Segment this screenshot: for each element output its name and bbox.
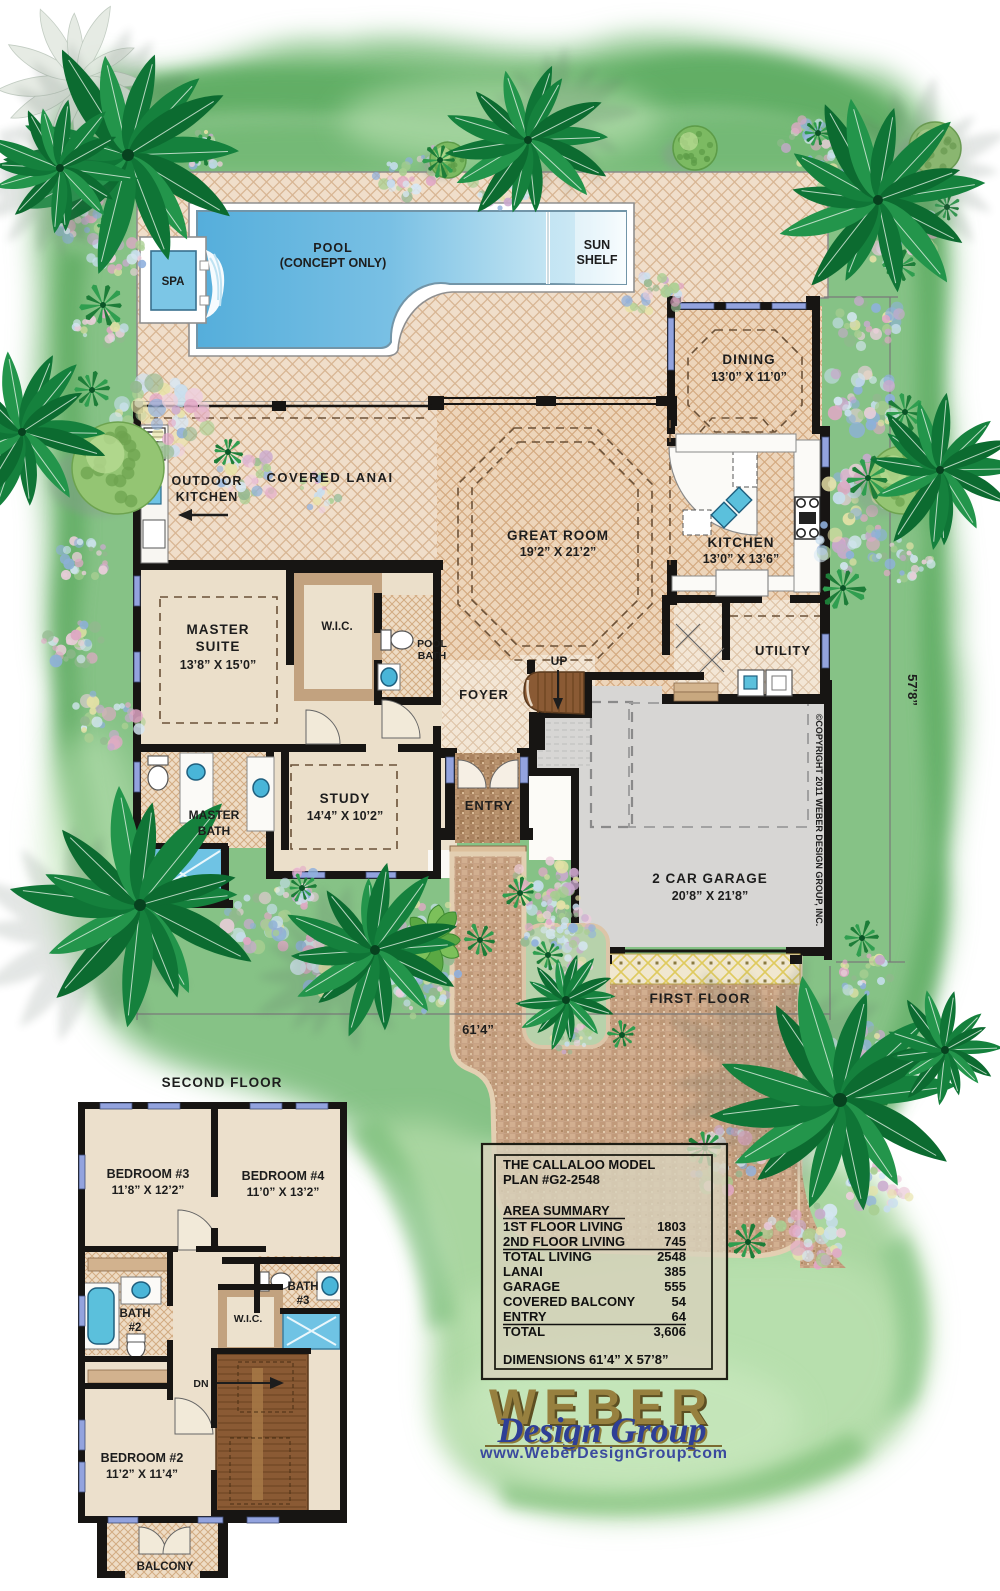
svg-text:54: 54 [672,1294,687,1309]
svg-text:BEDROOM #3: BEDROOM #3 [107,1167,190,1181]
svg-text:14’4” X 10’2”: 14’4” X 10’2” [307,809,383,823]
svg-text:SECOND FLOOR: SECOND FLOOR [162,1075,283,1090]
svg-text:Design Group: Design Group [496,1410,706,1450]
svg-text:57’8”: 57’8” [905,674,920,706]
svg-text:KITCHEN: KITCHEN [176,490,239,504]
svg-text:PLAN #G2-2548: PLAN #G2-2548 [503,1172,600,1187]
svg-text:SUN: SUN [584,238,610,252]
svg-text:BATH: BATH [198,824,230,838]
svg-text:20’8” X 21’8”: 20’8” X 21’8” [672,889,748,903]
svg-text:DN: DN [193,1378,208,1390]
svg-text:BEDROOM #4: BEDROOM #4 [242,1169,325,1183]
svg-text:61’4”: 61’4” [462,1022,494,1037]
svg-text:11’8” X 12’2”: 11’8” X 12’2” [112,1183,185,1197]
svg-text:SPA: SPA [162,276,185,288]
svg-text:GARAGE: GARAGE [503,1279,560,1294]
svg-text:COVERED LANAI: COVERED LANAI [266,470,393,485]
svg-text:THE CALLALOO MODEL: THE CALLALOO MODEL [503,1157,655,1172]
svg-text:745: 745 [664,1234,686,1249]
svg-text:UP: UP [551,654,568,668]
svg-text:TOTAL LIVING: TOTAL LIVING [503,1249,592,1264]
svg-text:11’0” X 13’2”: 11’0” X 13’2” [247,1185,320,1199]
svg-text:555: 555 [664,1279,686,1294]
svg-text:SHELF: SHELF [577,253,618,267]
svg-text:MASTER: MASTER [187,622,250,637]
svg-text:W.I.C.: W.I.C. [234,1313,263,1325]
svg-text:GREAT ROOM: GREAT ROOM [507,528,609,543]
svg-text:www.WeberDesignGroup.com: www.WeberDesignGroup.com [479,1445,728,1462]
svg-text:385: 385 [664,1264,686,1279]
svg-text:OUTDOOR: OUTDOOR [172,474,243,488]
svg-text:13’8” X 15’0”: 13’8” X 15’0” [180,658,256,672]
svg-text:1803: 1803 [657,1219,686,1234]
svg-text:TOTAL: TOTAL [503,1324,545,1339]
svg-text:POOL: POOL [417,638,447,650]
svg-text:COVERED BALCONY: COVERED BALCONY [503,1294,636,1309]
svg-text:KITCHEN: KITCHEN [708,535,775,550]
svg-text:2ND FLOOR LIVING: 2ND FLOOR LIVING [503,1234,625,1249]
svg-text:MASTER: MASTER [189,808,240,822]
svg-text:©COPYRIGHT 2011 WEBER DESIGN G: ©COPYRIGHT 2011 WEBER DESIGN GROUP, INC. [814,714,824,927]
svg-text:#3: #3 [297,1295,310,1307]
svg-text:64: 64 [672,1309,687,1324]
svg-text:ENTRY: ENTRY [503,1309,547,1324]
svg-text:3,606: 3,606 [653,1324,686,1339]
svg-text:11’2” X 11’4”: 11’2” X 11’4” [106,1467,178,1481]
svg-text:(CONCEPT ONLY): (CONCEPT ONLY) [280,256,387,270]
svg-text:1ST FLOOR LIVING: 1ST FLOOR LIVING [503,1219,623,1234]
svg-text:LANAI: LANAI [503,1264,543,1279]
svg-text:UTILITY: UTILITY [755,643,811,658]
svg-text:STUDY: STUDY [320,791,371,806]
svg-text:2548: 2548 [657,1249,686,1264]
svg-text:DIMENSIONS 61’4” X 57’8”: DIMENSIONS 61’4” X 57’8” [503,1352,668,1367]
svg-text:19’2” X 21’2”: 19’2” X 21’2” [520,545,596,559]
svg-text:FOYER: FOYER [459,687,509,702]
svg-text:BALCONY: BALCONY [137,1561,194,1573]
svg-text:BEDROOM #2: BEDROOM #2 [101,1451,184,1465]
svg-text:13’0” X 13’6”: 13’0” X 13’6” [703,552,779,566]
svg-text:13’0” X 11’0”: 13’0” X 11’0” [711,370,787,384]
svg-text:ENTRY: ENTRY [465,798,514,813]
svg-text:AREA SUMMARY: AREA SUMMARY [503,1203,610,1218]
svg-text:FIRST FLOOR: FIRST FLOOR [650,991,751,1006]
svg-text:DINING: DINING [722,352,775,367]
svg-text:#2: #2 [129,1322,142,1334]
svg-text:BATH: BATH [287,1281,318,1293]
svg-text:BATH: BATH [418,650,446,662]
svg-text:W.I.C.: W.I.C. [321,621,352,633]
svg-text:SUITE: SUITE [196,639,241,654]
svg-text:2 CAR GARAGE: 2 CAR GARAGE [652,871,768,886]
svg-text:BATH: BATH [119,1308,150,1320]
svg-text:POOL: POOL [313,241,352,255]
